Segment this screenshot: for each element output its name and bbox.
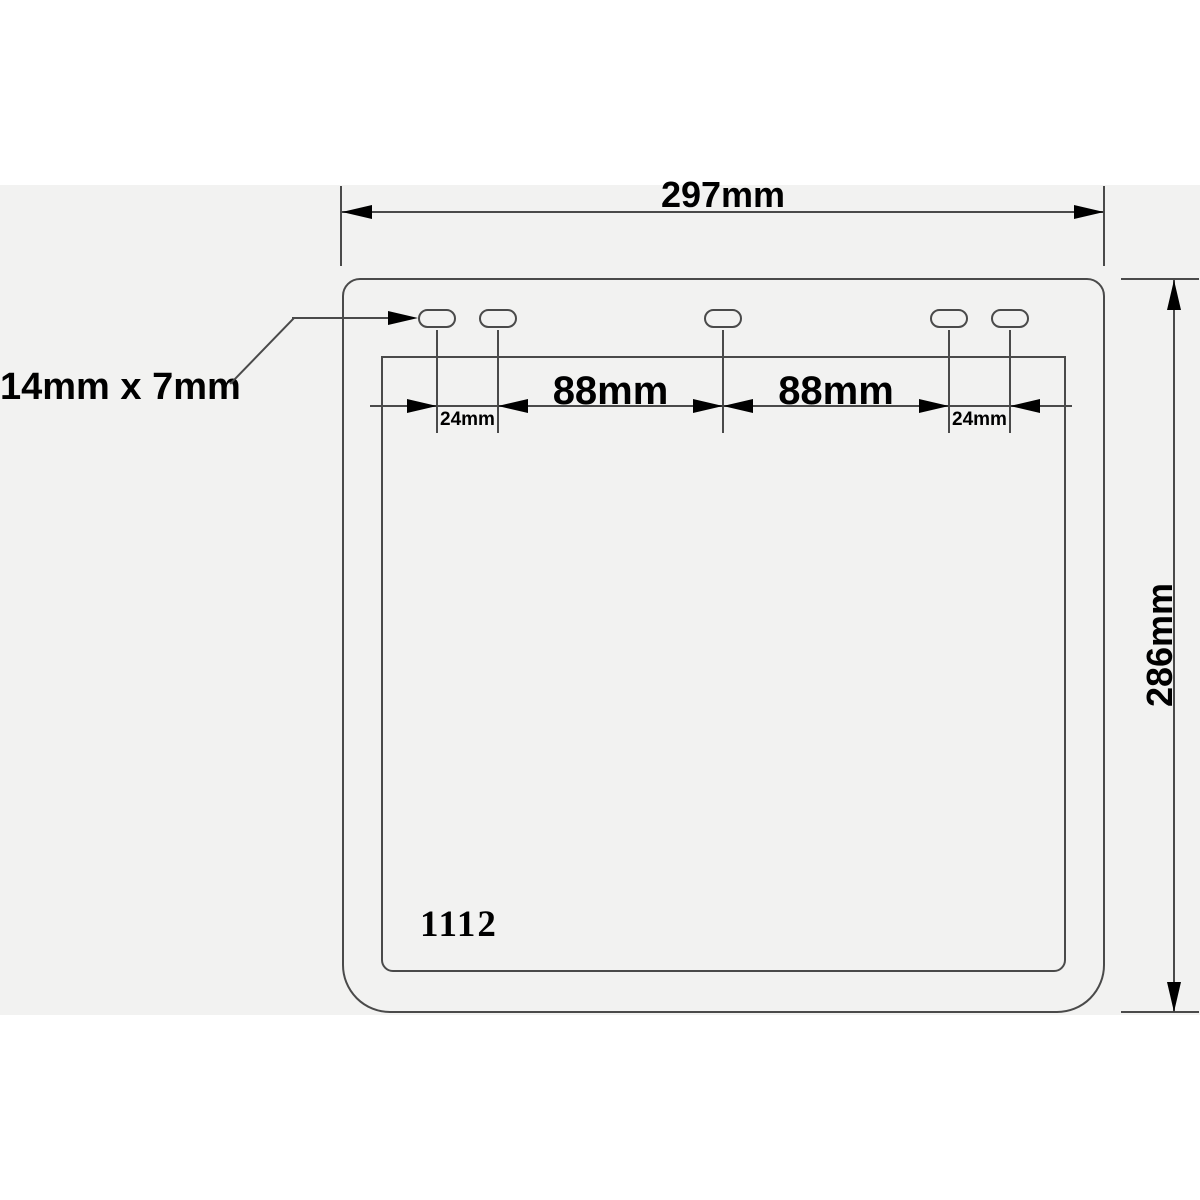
width-arrowhead-right bbox=[1074, 205, 1104, 219]
height-extension-line-top bbox=[1121, 278, 1199, 280]
width-arrowhead-left bbox=[342, 205, 372, 219]
chain-arrowhead-slot5 bbox=[1010, 399, 1040, 413]
slot-size-label: 14mm x 7mm bbox=[0, 368, 241, 406]
mounting-slot-3 bbox=[704, 309, 742, 328]
slot-leader-arrowhead bbox=[388, 311, 418, 325]
part-number-label: 1112 bbox=[420, 906, 498, 943]
offset-right-label: 24mm bbox=[949, 410, 1010, 429]
height-arrowhead-bottom bbox=[1167, 982, 1181, 1012]
mounting-slot-2 bbox=[479, 309, 517, 328]
height-dimension-label: 286mm bbox=[1142, 575, 1178, 715]
drawing-canvas: 297mm 286mm 24mm 88mm 88mm 24mm 14mm x 7… bbox=[0, 0, 1200, 1200]
pitch-left-label: 88mm bbox=[498, 371, 723, 411]
offset-left-label: 24mm bbox=[437, 410, 498, 429]
mudflap-inner-panel bbox=[381, 356, 1066, 972]
mounting-slot-1 bbox=[418, 309, 456, 328]
chain-arrowhead-slot1 bbox=[407, 399, 437, 413]
height-arrowhead-top bbox=[1167, 280, 1181, 310]
width-dimension-label: 297mm bbox=[573, 177, 873, 213]
slot-leader-line bbox=[292, 317, 390, 319]
mounting-slot-4 bbox=[930, 309, 968, 328]
mounting-slot-5 bbox=[991, 309, 1029, 328]
width-extension-line-left bbox=[340, 186, 342, 266]
width-extension-line-right bbox=[1103, 186, 1105, 266]
height-extension-line-bottom bbox=[1121, 1011, 1199, 1013]
pitch-right-label: 88mm bbox=[723, 371, 949, 411]
